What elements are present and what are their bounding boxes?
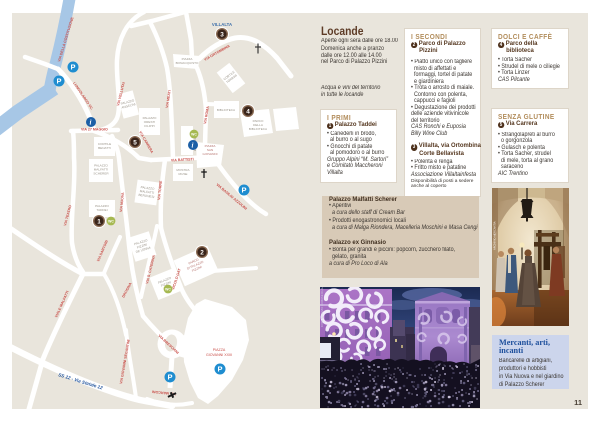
svg-text:VIA 27 MAGGIO: VIA 27 MAGGIO	[81, 128, 108, 132]
svg-text:VIA BATTISTI: VIA BATTISTI	[171, 157, 194, 162]
svg-text:i: i	[192, 142, 194, 150]
svg-text:WC: WC	[191, 132, 197, 136]
svg-text:3: 3	[220, 31, 224, 38]
svg-text:1: 1	[97, 218, 101, 225]
svg-text:P: P	[241, 186, 246, 195]
svg-text:2: 2	[200, 249, 204, 256]
svg-text:PIAZZA: PIAZZA	[213, 348, 226, 352]
svg-text:GIOVANNI XXIII: GIOVANNI XXIII	[206, 353, 232, 357]
svg-text:BIBLIOTECA: BIBLIOTECA	[217, 108, 236, 112]
svg-text:P: P	[56, 77, 61, 86]
svg-text:P: P	[70, 63, 75, 72]
svg-text:VILLALTA: VILLALTA	[212, 22, 232, 27]
svg-text:BENATTI: BENATTI	[98, 146, 111, 150]
svg-text:5: 5	[133, 139, 137, 146]
svg-text:SCHERER: SCHERER	[93, 172, 109, 176]
svg-text:WC: WC	[108, 219, 114, 223]
svg-text:WC: WC	[165, 287, 171, 291]
svg-text:MUSE: MUSE	[179, 172, 188, 176]
svg-text:DROSINA: DROSINA	[121, 282, 133, 299]
svg-text:GIOVANNI: GIOVANNI	[203, 152, 218, 156]
svg-text:4: 4	[246, 108, 250, 115]
svg-text:ARCHIVIO MERCANTIA: ARCHIVIO MERCANTIA	[493, 221, 497, 250]
svg-text:BIBLIOTECA: BIBLIOTECA	[249, 127, 268, 131]
svg-text:i: i	[90, 119, 92, 127]
svg-text:P: P	[167, 373, 172, 382]
svg-text:P: P	[217, 365, 222, 374]
svg-text:FILIPPI: FILIPPI	[144, 124, 154, 128]
svg-text:FOTO ARCHIVIO COMUNE DI ALA: FOTO ARCHIVIO COMUNE DI ALA	[320, 287, 324, 327]
svg-text:TADDEI: TADDEI	[96, 208, 107, 212]
svg-text:SS 12 - Via Statale 12: SS 12 - Via Statale 12	[58, 372, 104, 390]
svg-text:BONACQUISTO: BONACQUISTO	[176, 61, 199, 65]
svg-text:VIA SARTORI: VIA SARTORI	[96, 240, 109, 263]
